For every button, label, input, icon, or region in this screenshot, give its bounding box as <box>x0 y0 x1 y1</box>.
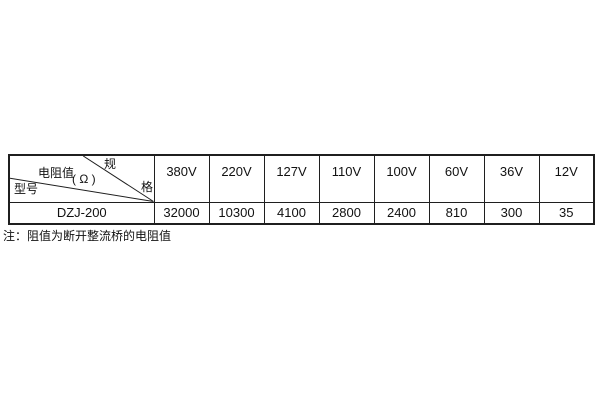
value-cell-12v: 35 <box>539 202 594 224</box>
value-cell-36v: 300 <box>484 202 539 224</box>
voltage-header-100v: 100V <box>374 155 429 202</box>
voltage-header-110v: 110V <box>319 155 374 202</box>
value-cell-127v: 4100 <box>264 202 319 224</box>
corner-label-spec-top: 规 <box>104 158 116 171</box>
voltage-header-60v: 60V <box>429 155 484 202</box>
corner-label-resistance: 电阻值 <box>38 167 74 180</box>
header-row: 规 电阻值 ( Ω ) 型号 格 380V 220V 127V 110V 100… <box>9 155 594 202</box>
value-cell-100v: 2400 <box>374 202 429 224</box>
value-cell-60v: 810 <box>429 202 484 224</box>
voltage-header-127v: 127V <box>264 155 319 202</box>
voltage-header-36v: 36V <box>484 155 539 202</box>
voltage-header-380v: 380V <box>154 155 209 202</box>
corner-label-model: 型号 <box>14 183 38 196</box>
voltage-header-220v: 220V <box>209 155 264 202</box>
footnote: 注：阻值为断开整流桥的电阻值 <box>3 227 171 244</box>
table-row: DZJ-200 32000 10300 4100 2800 2400 810 3… <box>9 202 594 224</box>
corner-label-spec-bottom: 格 <box>141 181 153 194</box>
value-cell-110v: 2800 <box>319 202 374 224</box>
model-cell: DZJ-200 <box>9 202 154 224</box>
spec-table: 规 电阻值 ( Ω ) 型号 格 380V 220V 127V 110V 100… <box>8 154 595 225</box>
diagonal-header-cell: 规 电阻值 ( Ω ) 型号 格 <box>9 155 154 202</box>
value-cell-220v: 10300 <box>209 202 264 224</box>
value-cell-380v: 32000 <box>154 202 209 224</box>
resistance-spec-table: 规 电阻值 ( Ω ) 型号 格 380V 220V 127V 110V 100… <box>8 154 595 225</box>
corner-label-ohm-unit: ( Ω ) <box>72 173 96 186</box>
voltage-header-12v: 12V <box>539 155 594 202</box>
